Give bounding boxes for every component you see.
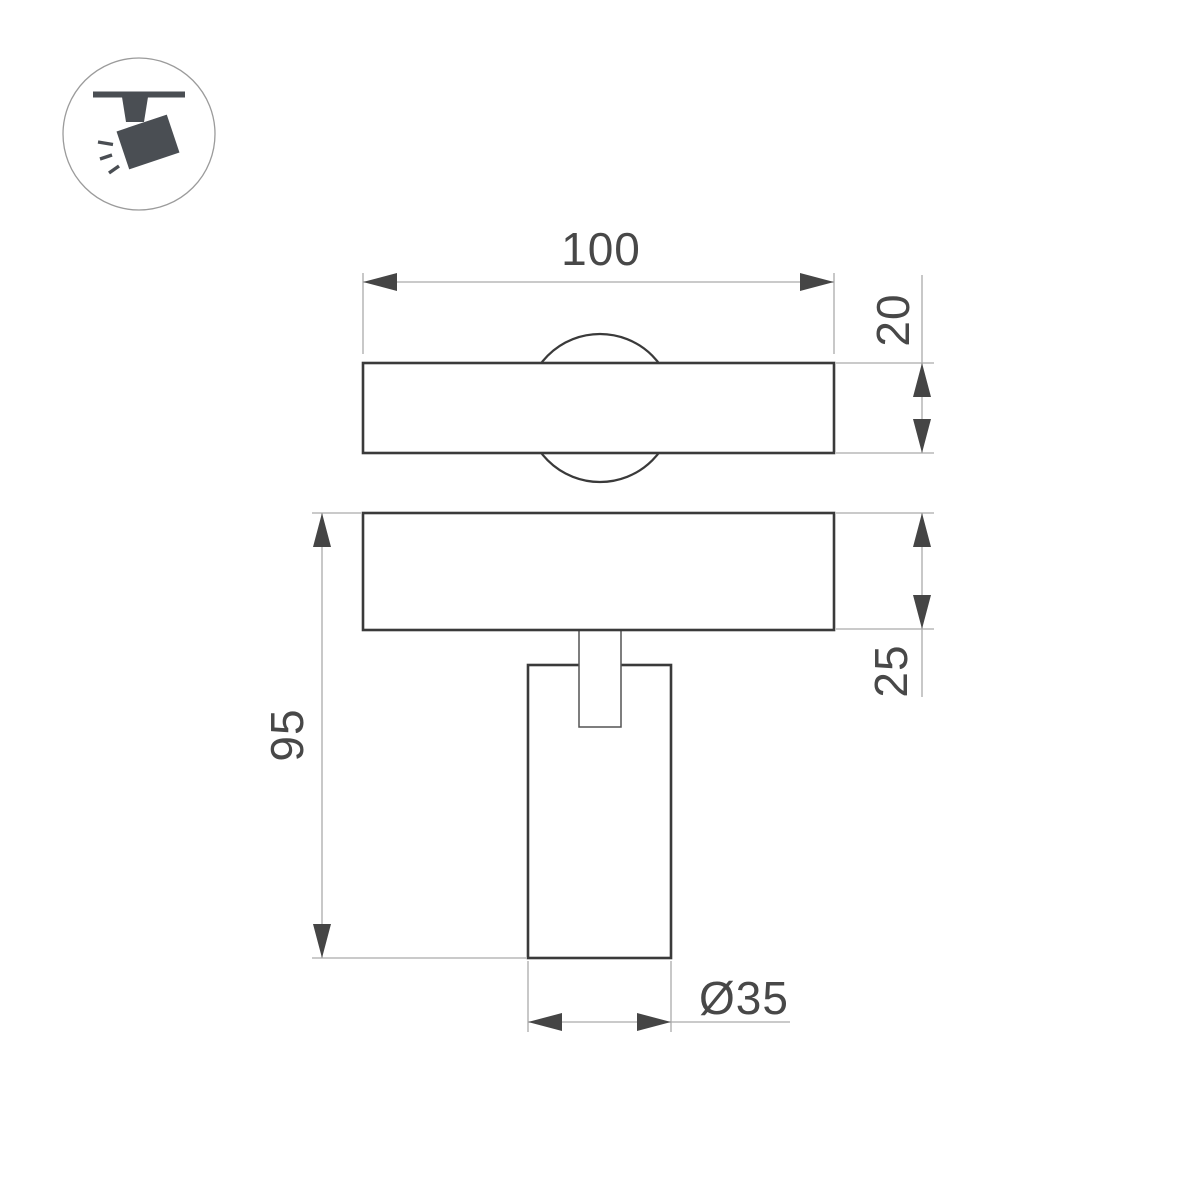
icon-stem: [122, 97, 148, 122]
arrowhead-right: [800, 273, 834, 291]
top-view: [363, 334, 834, 482]
dim-plate-thickness: 20: [836, 275, 934, 453]
dim-plate-height: 25: [836, 513, 934, 698]
arrowhead-left: [363, 273, 397, 291]
dim-label-overall-width: 100: [561, 223, 641, 275]
dim-label-plate-thickness: 20: [867, 293, 919, 346]
arrowhead-up: [313, 513, 331, 547]
dimension-drawing: 100 20 25 95 Ø35: [0, 0, 1200, 1200]
arrowhead-left: [528, 1013, 562, 1031]
front-view: [363, 513, 834, 958]
arrowhead-down: [313, 924, 331, 958]
dim-label-plate-height: 25: [865, 644, 917, 697]
arrowhead-up: [913, 513, 931, 547]
front-view-stem: [579, 630, 621, 727]
arrowhead-up: [913, 363, 931, 397]
top-view-plate: [363, 363, 834, 453]
dim-body-diameter: Ø35: [528, 961, 790, 1032]
icon-track-bar: [93, 92, 185, 98]
arrowhead-down: [913, 419, 931, 453]
brand-logo: [63, 58, 215, 210]
front-view-plate: [363, 513, 834, 630]
dim-label-body-diameter: Ø35: [699, 972, 789, 1024]
arrowhead-down: [913, 595, 931, 629]
arrowhead-right: [637, 1013, 671, 1031]
dim-label-overall-height: 95: [261, 708, 313, 761]
